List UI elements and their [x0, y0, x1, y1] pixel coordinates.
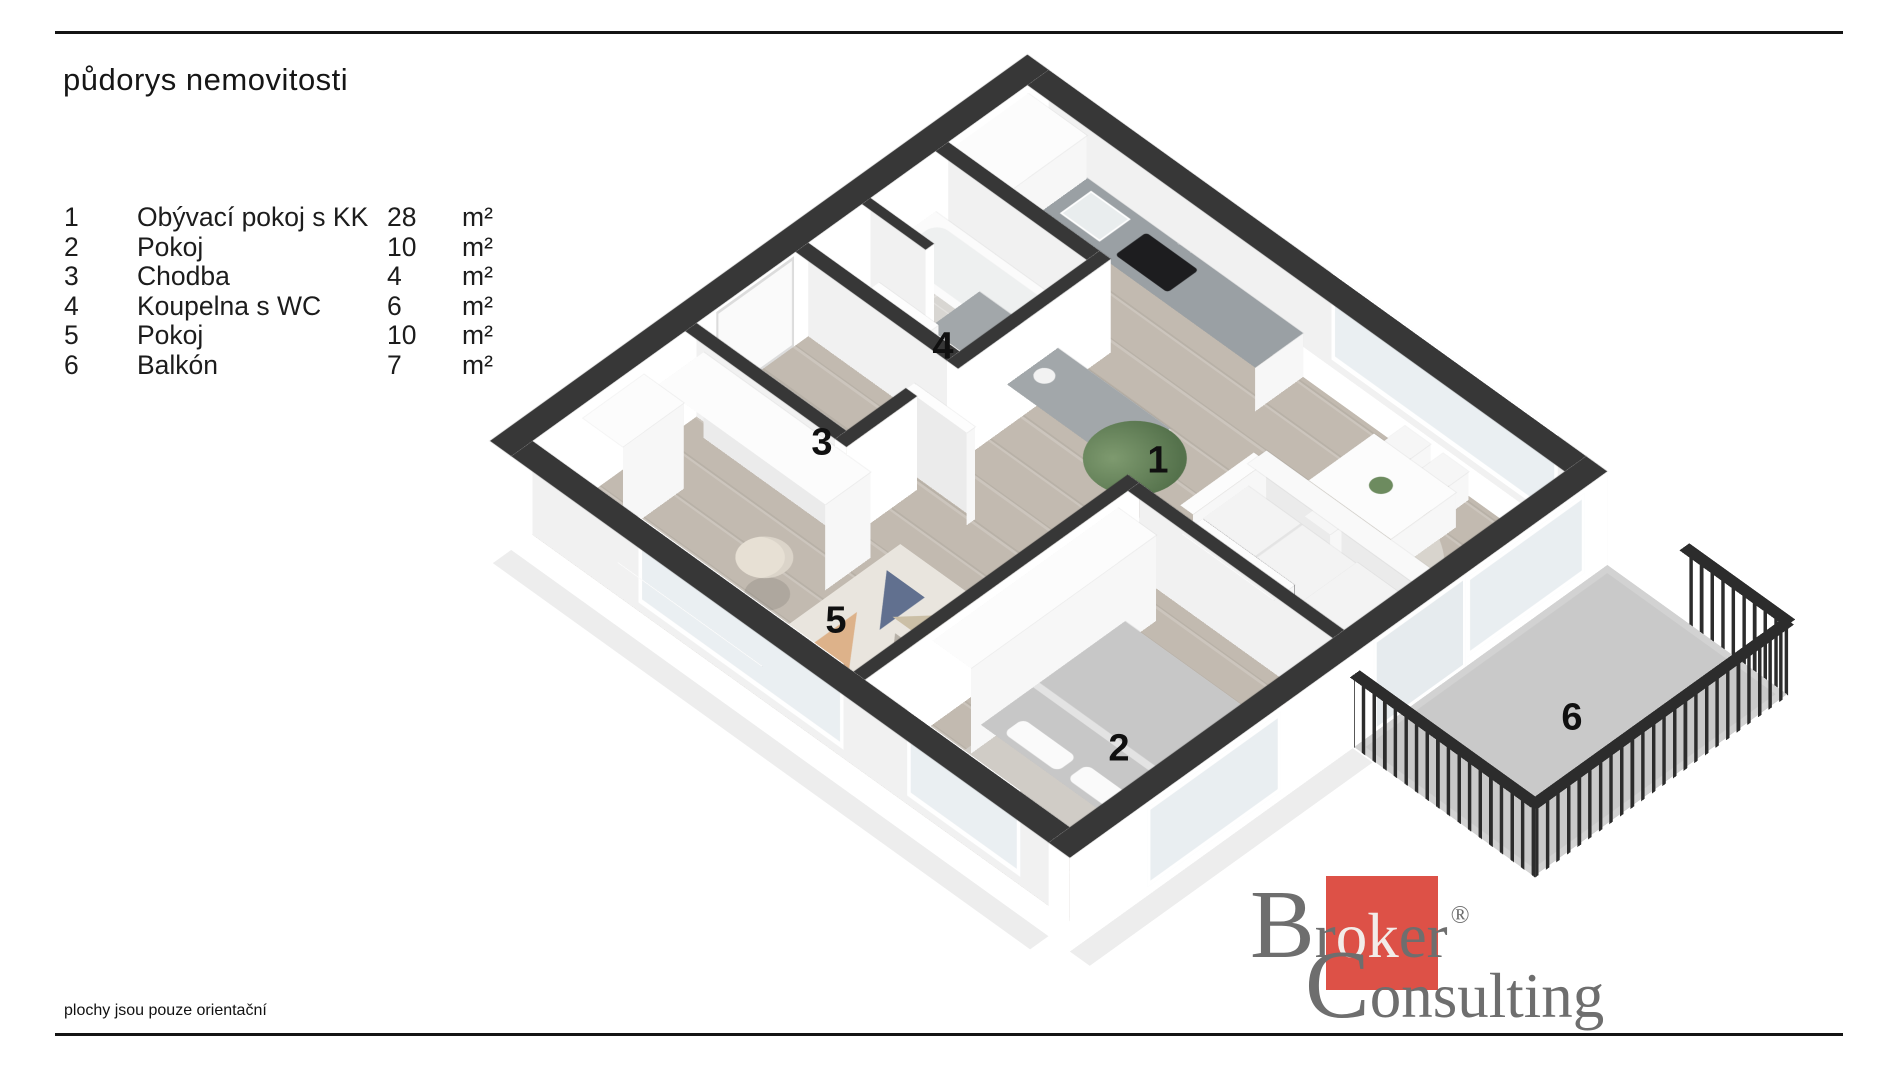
- legend-area-unit: m²: [462, 351, 493, 381]
- legend-row: 1 Obývací pokoj s KK 28 m²: [64, 203, 493, 233]
- plan-label-office: 5: [825, 600, 846, 643]
- legend-room-name: Obývací pokoj s KK: [137, 203, 387, 233]
- registered-trademark-icon: ®: [1451, 902, 1470, 929]
- legend-area-unit: m²: [462, 233, 493, 263]
- legend-row: 6 Balkón 7 m²: [64, 351, 493, 381]
- legend-room-number: 5: [64, 321, 137, 351]
- legend-room-number: 1: [64, 203, 137, 233]
- logo-text: onsulting: [1370, 961, 1605, 1031]
- legend-row: 4 Koupelna s WC 6 m²: [64, 292, 493, 322]
- logo-word-consulting: Consulting: [1305, 946, 1604, 1028]
- legend-room-area: 28: [387, 203, 462, 233]
- page-title: půdorys nemovitosti: [63, 62, 348, 98]
- disclaimer-note: plochy jsou pouze orientační: [64, 1002, 267, 1020]
- legend-area-unit: m²: [462, 203, 493, 233]
- legend-room-area: 7: [387, 351, 462, 381]
- legend-area-unit: m²: [462, 321, 493, 351]
- legend-room-name: Balkón: [137, 351, 387, 381]
- logo-letter-c: C: [1305, 931, 1370, 1038]
- legend-room-area: 10: [387, 233, 462, 263]
- room-legend: 1 Obývací pokoj s KK 28 m² 2 Pokoj 10 m²…: [64, 203, 493, 381]
- legend-row: 5 Pokoj 10 m²: [64, 321, 493, 351]
- legend-row: 2 Pokoj 10 m²: [64, 233, 493, 263]
- top-rule: [55, 31, 1843, 34]
- broker-consulting-logo: Broker® Consulting: [1250, 886, 1690, 1046]
- legend-room-number: 3: [64, 262, 137, 292]
- legend-row: 3 Chodba 4 m²: [64, 262, 493, 292]
- plan-label-bedroom: 2: [1108, 728, 1129, 771]
- plan-label-living-room: 1: [1147, 440, 1168, 483]
- plan-label-balcony: 6: [1561, 697, 1582, 740]
- legend-room-number: 4: [64, 292, 137, 322]
- legend-room-area: 10: [387, 321, 462, 351]
- page: půdorys nemovitosti 1 Obývací pokoj s KK…: [0, 0, 1900, 1069]
- table-plant: [1364, 473, 1398, 497]
- door-leaf-hallway-south: [967, 427, 975, 526]
- legend-area-unit: m²: [462, 262, 493, 292]
- plan-label-bathroom: 4: [932, 326, 953, 369]
- legend-room-name: Pokoj: [137, 233, 387, 263]
- legend-room-number: 2: [64, 233, 137, 263]
- flower-vase: [1029, 365, 1060, 387]
- legend-room-name: Pokoj: [137, 321, 387, 351]
- legend-room-area: 4: [387, 262, 462, 292]
- legend-area-unit: m²: [462, 292, 493, 322]
- legend-room-number: 6: [64, 351, 137, 381]
- legend-room-name: Chodba: [137, 262, 387, 292]
- legend-room-area: 6: [387, 292, 462, 322]
- floor-plan-scene: [490, 149, 1607, 952]
- plan-label-hallway: 3: [811, 422, 832, 465]
- legend-room-name: Koupelna s WC: [137, 292, 387, 322]
